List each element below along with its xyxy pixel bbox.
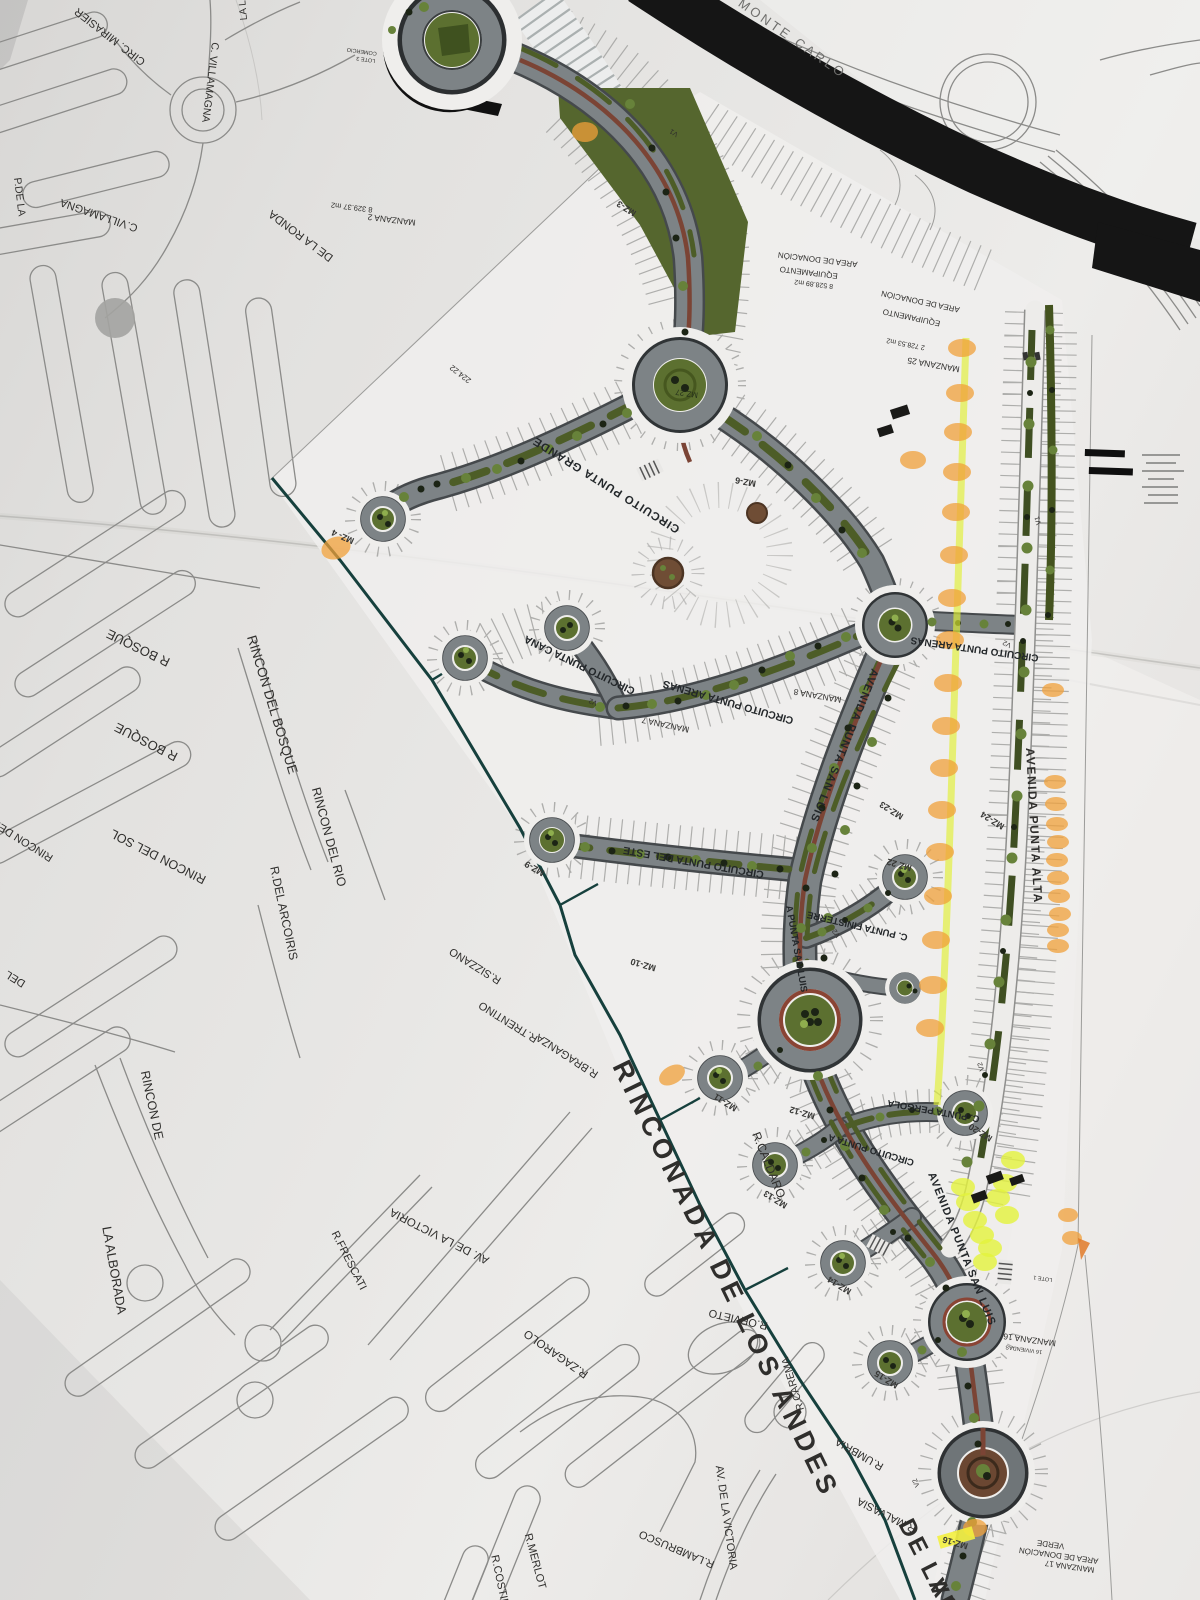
legend-marks — [1085, 449, 1184, 503]
label-rincon-del: RINCON DEL — [0, 817, 55, 863]
label-r-braganza: R.BRAGANZA — [534, 1031, 601, 1080]
label-c-villamagna-2: C.VILLAMAGNA — [58, 196, 139, 234]
roundabout-mz27 — [622, 327, 738, 443]
label-rincon-del-rio: RINCON DEL RIO — [309, 786, 349, 889]
site-plan-photo: LA LOMA CIRC. MIRASIER C. VILLAMAGNA P.D… — [0, 0, 1200, 1600]
label-manzana-2: MANZANA 2 — [367, 212, 416, 228]
label-r-zagarolo: R.ZAGAROLO — [522, 1327, 591, 1380]
label-p-de-la: P.DE LA — [11, 177, 28, 217]
label-del: DEL — [3, 968, 28, 990]
label-r-bosque-1: R BOSQUE — [104, 626, 173, 670]
label-r-frescati: R.FRESCATI — [329, 1229, 369, 1292]
label-r-del-arcoiris: R.DEL ARCOIRIS — [267, 865, 301, 961]
label-circ-mirasier: CIRC. MIRASIER — [72, 5, 147, 68]
label-de-la-ronda: DE LA RONDA — [266, 207, 335, 263]
label-comercio: COMERCIO — [346, 46, 378, 56]
label-c-villamagna-1: C. VILLAMAGNA — [199, 42, 221, 123]
label-la-alborada: LA ALBORADA — [99, 1225, 129, 1315]
label-r-sizzano: R.SIZZANO — [447, 945, 503, 987]
label-la-loma: LA LOMA — [235, 0, 250, 21]
label-r-lambrusco: R.LAMBRUSCO — [637, 1527, 716, 1570]
gray-dot-mark — [95, 298, 135, 338]
label-rincon-del-sol: RINCON DEL SOL — [108, 826, 208, 886]
label-r-trentino: R.TRENTINO — [476, 998, 540, 1044]
label-av-victoria-1: AV. DE LA VICTORIA — [388, 1205, 492, 1266]
roundabout-north — [382, 0, 522, 116]
label-rincon-de: RINCON DE — [138, 1069, 166, 1141]
label-area-8329: 8 329.37 m2 — [330, 200, 372, 214]
roundabout-east — [855, 585, 935, 665]
label-r-costini: R.COSTINI — [488, 1554, 511, 1600]
label-rincon-del-bosque: RINCON DEL BOSQUE — [244, 634, 301, 776]
site-plan-map: LA LOMA CIRC. MIRASIER C. VILLAMAGNA P.D… — [0, 0, 1200, 1600]
label-r-merlot: R.MERLOT — [522, 1532, 548, 1590]
